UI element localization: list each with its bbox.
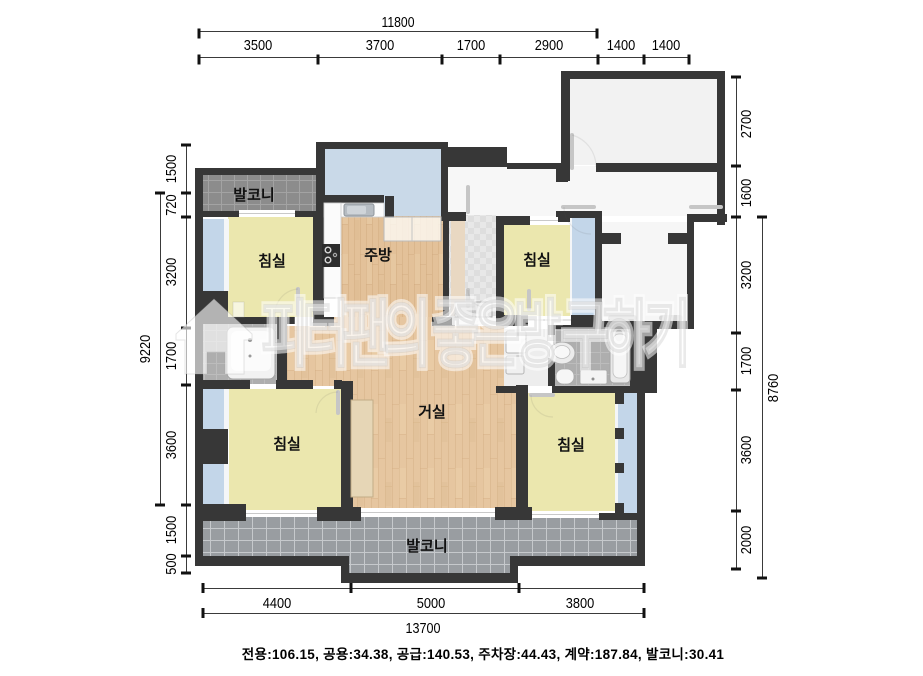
svg-text:11800: 11800: [382, 15, 415, 31]
svg-text:침실: 침실: [273, 436, 301, 453]
svg-text:500: 500: [164, 553, 180, 574]
svg-text:침실: 침실: [557, 437, 585, 454]
svg-text:1600: 1600: [739, 179, 755, 208]
svg-text:1400: 1400: [607, 38, 636, 54]
svg-text:침실: 침실: [258, 253, 286, 270]
svg-text:1500: 1500: [164, 516, 180, 545]
svg-text:3600: 3600: [164, 431, 180, 460]
svg-text:3200: 3200: [164, 258, 180, 287]
svg-text:4400: 4400: [263, 596, 292, 612]
svg-text:발코니: 발코니: [233, 187, 274, 204]
svg-text:거실: 거실: [418, 404, 446, 421]
svg-text:8760: 8760: [766, 374, 782, 403]
svg-text:3200: 3200: [739, 261, 755, 290]
svg-text:720: 720: [164, 194, 180, 215]
svg-text:13700: 13700: [406, 621, 441, 637]
svg-text:2900: 2900: [535, 38, 564, 54]
svg-text:전용:106.15, 공용:34.38, 공급:140.53: 전용:106.15, 공용:34.38, 공급:140.53, 주차장:44.4…: [242, 646, 725, 662]
svg-text:9220: 9220: [138, 335, 154, 364]
svg-text:1700: 1700: [164, 342, 180, 371]
svg-text:5000: 5000: [417, 596, 446, 612]
svg-text:3500: 3500: [244, 38, 273, 54]
svg-text:3600: 3600: [739, 436, 755, 465]
svg-text:3800: 3800: [566, 596, 595, 612]
svg-text:2000: 2000: [739, 526, 755, 555]
svg-text:1700: 1700: [457, 38, 486, 54]
svg-text:1500: 1500: [164, 155, 180, 184]
svg-text:3700: 3700: [366, 38, 395, 54]
svg-text:2700: 2700: [739, 110, 755, 139]
svg-text:발코니: 발코니: [406, 538, 447, 555]
svg-text:주방: 주방: [364, 246, 392, 264]
svg-text:1700: 1700: [739, 347, 755, 376]
svg-text:피터팬의 좋은방 구하기: 피터팬의 좋은방 구하기: [261, 293, 686, 376]
svg-text:1400: 1400: [652, 38, 681, 54]
svg-text:침실: 침실: [523, 252, 551, 269]
